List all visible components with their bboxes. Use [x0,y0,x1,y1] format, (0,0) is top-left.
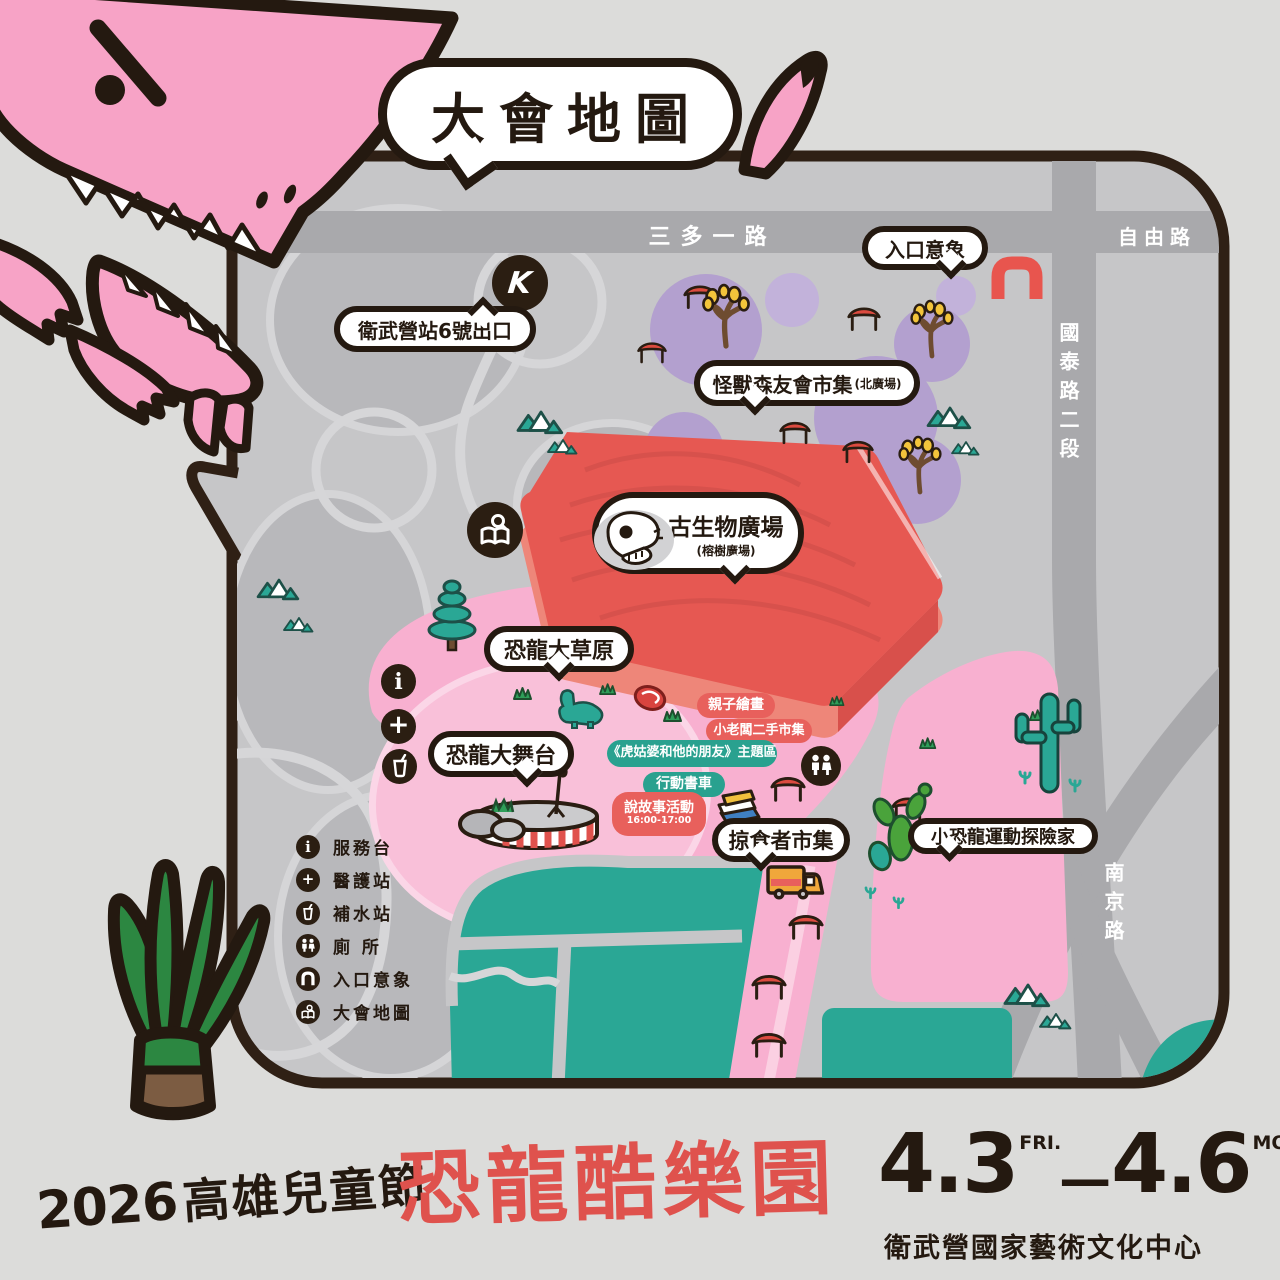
legend-label-map: 大會地圖 [333,999,413,1024]
map-book-icon [467,502,523,558]
legend-row-entrance: 入口意象 [296,966,413,991]
date-start: 4.3 [878,1126,1017,1204]
map-info-icon: i [381,664,416,699]
legend-row-service: i 服務台 [296,834,413,859]
map-medical-icon: + [381,709,416,744]
legend-label-medical: 醫護站 [333,867,393,892]
entrance-bubble: 入口意象 [862,226,988,270]
date-separator: — [1059,1150,1111,1210]
event-dates: 4.3 FRI. — 4.6 MON. [878,1126,1280,1210]
paleo-plaza-label: 古生物廣場 [669,508,784,542]
explorer-bubble: 小恐龍運動探險家 [908,818,1098,854]
date-end: 4.6 [1111,1126,1250,1204]
grassland-bubble: 恐龍大草原 [484,626,634,672]
map-icon [296,1000,320,1024]
legend-label-water: 補水站 [333,900,393,925]
road-label-guotai: 國泰路二段 [1054,322,1083,467]
storytime-time-label: 16:00-17:00 [627,816,691,826]
date-end-day: MON. [1252,1132,1280,1154]
water-icon [296,901,320,925]
family-painting-label: 親子繪畫 [708,698,764,713]
event-title: 恐龍酷樂園 [397,1134,839,1236]
legend-row-map: 大會地圖 [296,999,413,1024]
info-icon: i [296,835,320,859]
book-truck-label: 行動書車 [656,777,712,792]
title-bubble: 大會地圖 [378,58,742,170]
stage-bubble: 恐龍大舞台 [428,731,574,777]
map-legend: i 服務台 + 醫護站 補水站 廁 所 入口意象 大會地圖 [296,834,413,1024]
paleo-plaza-bubble: 古生物廣場 (榕樹廣場) [592,492,804,574]
predator-market-label: 掠食者市集 [729,825,834,855]
monster-market-label: 怪獸森友會市集 [713,369,853,398]
kid-boss-market-label: 小老闆二手市集 [713,724,804,738]
toilet-icon [296,934,320,958]
monster-market-sublabel: (北廣場) [855,375,902,392]
storytime-label: 說故事活動 [624,801,694,816]
legend-row-water: 補水站 [296,900,413,925]
date-start-day: FRI. [1019,1132,1061,1154]
medical-glyph: + [388,710,410,740]
medical-icon: + [296,868,320,892]
mrt-exit-bubble: 衛武營站6號出口 [334,306,536,352]
road-label-ziyou: 自由路 [1102,221,1212,250]
stage-label: 恐龍大舞台 [446,738,556,770]
mrt-k-glyph: K [507,266,534,301]
tiger-theme-pill: 《虎姑婆和他的朋友》主題區 [607,740,777,767]
title-bubble-label: 大會地圖 [417,75,703,154]
predator-market-bubble: 掠食者市集 [712,818,850,862]
legend-label-service: 服務台 [333,834,393,859]
dinosaur-eye [95,75,125,105]
family-painting-pill: 親子繪畫 [697,693,775,718]
dinosaur-skull-icon [592,502,678,574]
entrance-icon [296,967,320,991]
map-illustration [0,0,1280,1280]
info-glyph: i [394,669,402,695]
festival-year: 2026 [35,1172,180,1242]
map-water-icon [382,749,417,784]
mrt-station-icon: K [492,255,548,311]
legend-label-entrance: 入口意象 [333,966,413,991]
legend-row-medical: + 醫護站 [296,867,413,892]
legend-label-entrance-sign: 廁 所 [333,933,382,958]
road-label-sanduo: 三多一路 [600,219,825,251]
tiger-theme-label: 《虎姑婆和他的朋友》主題區 [607,746,776,760]
road-label-nanjing: 南京路 [1099,862,1128,949]
monster-market-bubble: 怪獸森友會市集 (北廣場) [694,360,920,406]
legend-row-toilet: 廁 所 [296,933,413,958]
venue-name: 衛武營國家藝術文化中心 [884,1226,1203,1265]
storytime-pill: 說故事活動 16:00-17:00 [612,792,706,836]
paleo-plaza-sublabel: (榕樹廣場) [697,542,756,559]
map-toilet-icon [801,746,841,786]
